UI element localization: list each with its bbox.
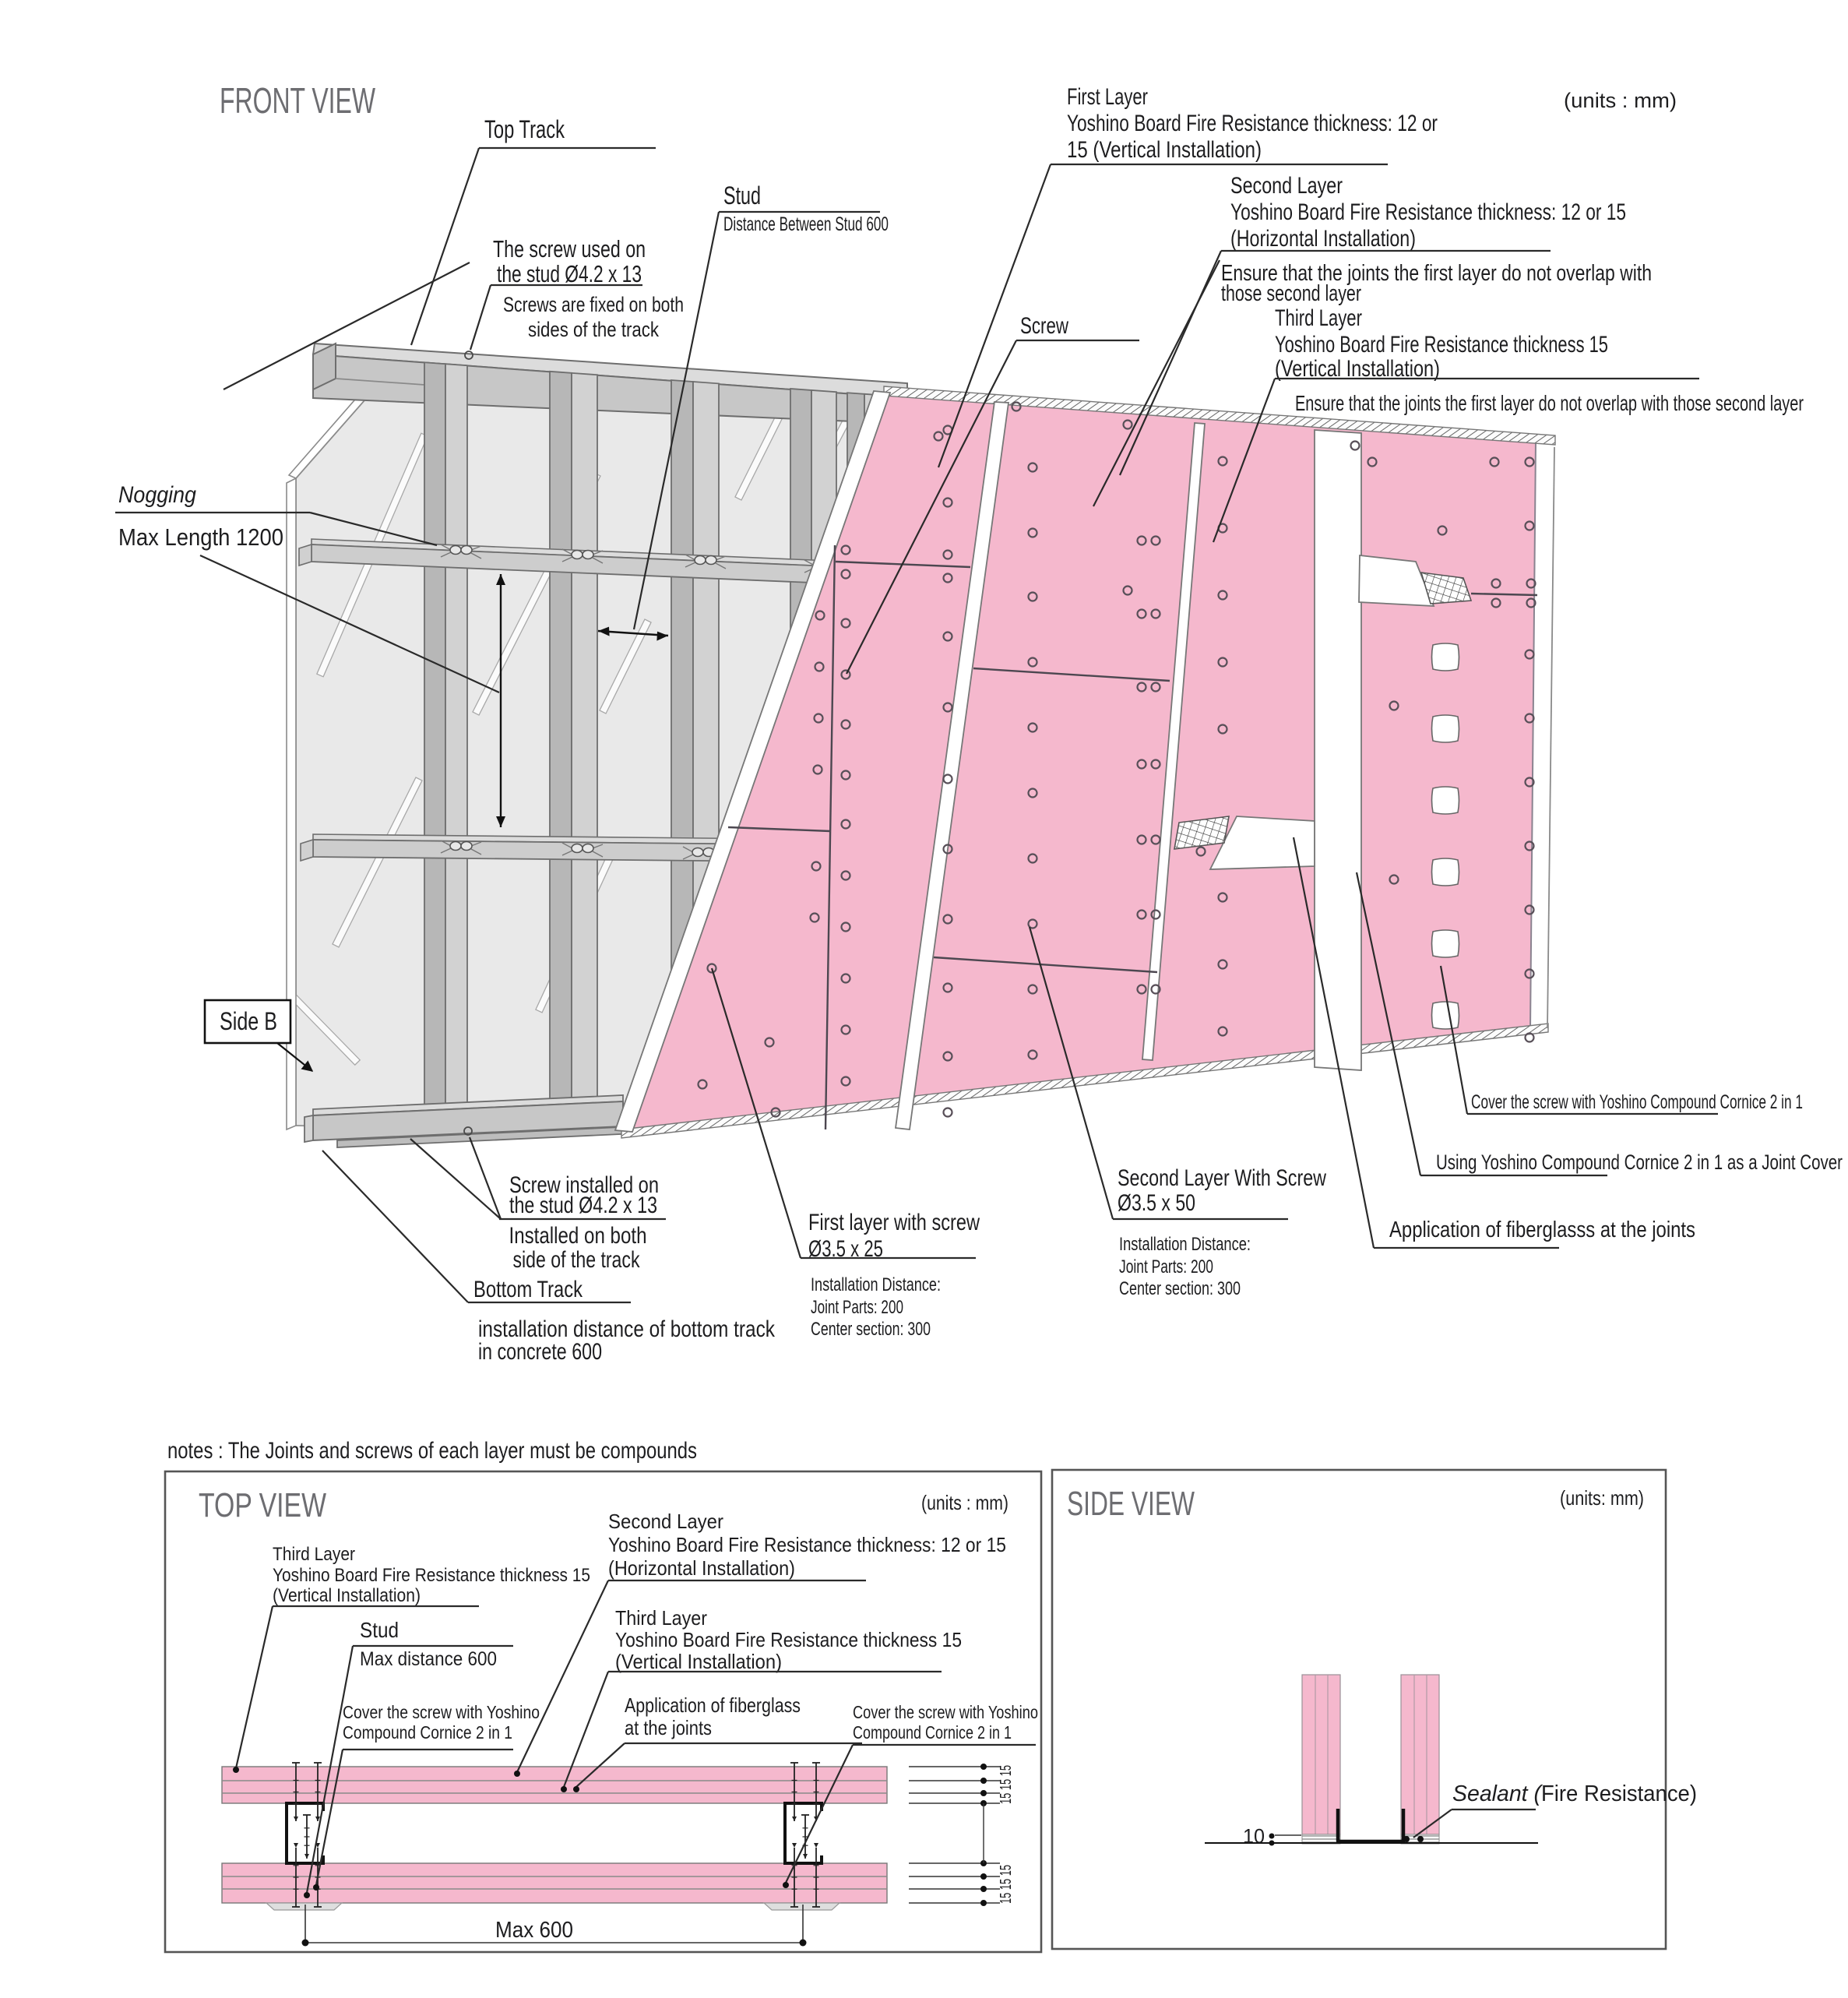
svg-text:Center section: 300: Center section: 300 xyxy=(811,1319,931,1340)
svg-text:Yoshino Board Fire Resistance: Yoshino Board Fire Resistance thickness:… xyxy=(1067,111,1438,136)
svg-text:(units: mm): (units: mm) xyxy=(1560,1486,1644,1510)
svg-text:15 15 15: 15 15 15 xyxy=(998,1865,1015,1904)
svg-text:Cover the screw with Yoshino C: Cover the screw with Yoshino Compound Co… xyxy=(1471,1091,1803,1113)
svg-text:Screws are fixed on both: Screws are fixed on both xyxy=(503,293,684,316)
svg-text:First Layer: First Layer xyxy=(1067,84,1148,110)
svg-text:Yoshino Board Fire Resistance: Yoshino Board Fire Resistance thickness:… xyxy=(1230,199,1626,225)
svg-text:Second Layer: Second Layer xyxy=(1230,173,1343,199)
svg-text:Cover the screw with Yoshino: Cover the screw with Yoshino xyxy=(343,1702,540,1722)
svg-text:Joint Parts: 200: Joint Parts: 200 xyxy=(811,1297,903,1318)
svg-text:Using Yoshino Compound Cornice: Using Yoshino Compound Cornice 2 in 1 as… xyxy=(1436,1151,1843,1174)
svg-text:Third Layer: Third Layer xyxy=(1275,305,1362,331)
svg-text:Max Length 1200: Max Length 1200 xyxy=(118,523,283,551)
svg-text:(Horizontal Installation): (Horizontal Installation) xyxy=(608,1556,795,1580)
svg-text:(Horizontal Installation): (Horizontal Installation) xyxy=(1230,226,1416,252)
svg-text:(Vertical Installation): (Vertical Installation) xyxy=(273,1585,421,1606)
svg-text:Max 600: Max 600 xyxy=(495,1918,573,1943)
svg-text:Ensure that the joints the fir: Ensure that the joints the first layer d… xyxy=(1295,391,1804,415)
svg-text:Yoshino Board Fire Resistance: Yoshino Board Fire Resistance thickness … xyxy=(615,1628,962,1651)
svg-text:15 15 15: 15 15 15 xyxy=(998,1765,1015,1804)
svg-text:Max distance 600: Max distance 600 xyxy=(360,1648,497,1670)
svg-text:Compound Cornice 2 in 1: Compound Cornice 2 in 1 xyxy=(343,1722,512,1743)
svg-text:the stud Ø4.2 x 13: the stud Ø4.2 x 13 xyxy=(509,1193,657,1218)
svg-text:Second Layer With Screw: Second Layer With Screw xyxy=(1118,1165,1326,1191)
svg-text:Application of fiberglasss at: Application of fiberglasss at the joints xyxy=(1389,1217,1695,1242)
svg-text:Installation Distance:: Installation Distance: xyxy=(811,1274,941,1295)
svg-text:Sealant (: Sealant ( xyxy=(1452,1781,1544,1806)
svg-text:Nogging: Nogging xyxy=(118,482,196,508)
svg-text:Side B: Side B xyxy=(220,1007,277,1035)
svg-text:Yoshino Board Fire Resistance: Yoshino Board Fire Resistance thickness … xyxy=(1275,332,1608,358)
svg-text:Third Layer: Third Layer xyxy=(615,1606,707,1630)
svg-text:Top Track: Top Track xyxy=(484,115,565,143)
svg-text:Screw: Screw xyxy=(1020,313,1068,339)
svg-text:Second Layer: Second Layer xyxy=(608,1510,723,1533)
svg-text:Center section: 300: Center section: 300 xyxy=(1119,1278,1241,1299)
svg-text:those second layer: those second layer xyxy=(1221,281,1361,306)
svg-text:sides of the track: sides of the track xyxy=(528,318,659,341)
svg-text:First layer with screw: First layer with screw xyxy=(808,1210,980,1235)
svg-text:(Vertical Installation): (Vertical Installation) xyxy=(615,1650,782,1673)
svg-text:Joint Parts: 200: Joint Parts: 200 xyxy=(1119,1256,1213,1277)
svg-text:Third Layer: Third Layer xyxy=(273,1544,355,1565)
svg-text:15 (Vertical Installation): 15 (Vertical Installation) xyxy=(1067,137,1262,163)
svg-text:Bottom Track: Bottom Track xyxy=(473,1277,583,1302)
svg-text:side of the track: side of the track xyxy=(513,1247,641,1273)
svg-text:The screw used on: The screw used on xyxy=(493,235,646,263)
svg-text:Cover the screw with Yoshino: Cover the screw with Yoshino xyxy=(853,1702,1038,1722)
svg-text:(units : mm): (units : mm) xyxy=(921,1491,1008,1514)
svg-text:SIDE VIEW: SIDE VIEW xyxy=(1067,1485,1195,1523)
svg-text:Distance Between Stud 600: Distance Between Stud 600 xyxy=(723,213,889,235)
svg-text:FRONT VIEW: FRONT VIEW xyxy=(220,80,375,121)
svg-text:Installation Distance:: Installation Distance: xyxy=(1119,1234,1251,1255)
svg-text:notes : The Joints and screws: notes : The Joints and screws of each la… xyxy=(167,1438,697,1464)
svg-text:Fire Resistance): Fire Resistance) xyxy=(1541,1781,1697,1806)
svg-text:Yoshino Board Fire Resistance: Yoshino Board Fire Resistance thickness … xyxy=(273,1565,590,1586)
svg-text:the stud Ø4.2 x 13: the stud Ø4.2 x 13 xyxy=(497,260,642,287)
svg-text:Stud: Stud xyxy=(360,1618,399,1642)
svg-text:(units : mm): (units : mm) xyxy=(1564,89,1677,112)
svg-text:at the joints: at the joints xyxy=(625,1716,712,1739)
svg-text:10: 10 xyxy=(1243,1824,1265,1848)
svg-text:Installed on both: Installed on both xyxy=(509,1223,647,1249)
svg-text:Stud: Stud xyxy=(723,181,761,210)
svg-text:TOP VIEW: TOP VIEW xyxy=(199,1486,326,1524)
svg-text:Compound Cornice 2 in 1: Compound Cornice 2 in 1 xyxy=(853,1722,1012,1743)
svg-text:in concrete 600: in concrete 600 xyxy=(478,1339,602,1365)
svg-text:Application of fiberglass: Application of fiberglass xyxy=(625,1693,801,1717)
svg-text:Yoshino Board Fire Resistance: Yoshino Board Fire Resistance thickness:… xyxy=(608,1533,1006,1556)
svg-text:Ø3.5 x 50: Ø3.5 x 50 xyxy=(1118,1190,1195,1216)
